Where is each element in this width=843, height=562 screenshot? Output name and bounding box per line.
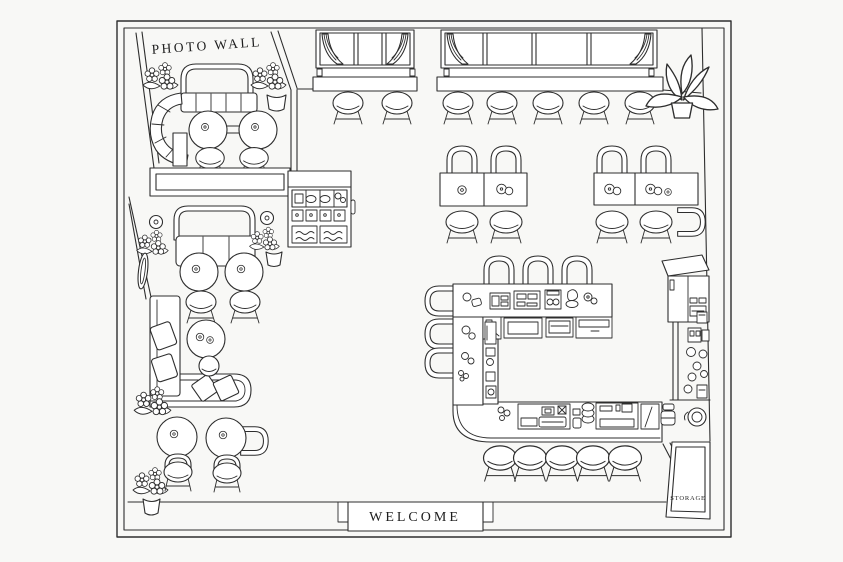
partition-console	[150, 168, 290, 196]
ottoman	[199, 356, 219, 376]
lounge-chair	[230, 291, 260, 323]
milk-jug	[568, 290, 578, 301]
flower-pot	[143, 499, 160, 515]
dining-chair	[640, 211, 672, 243]
bar-stool	[625, 92, 655, 124]
cafe-table	[206, 418, 246, 458]
pastry-display-counter	[288, 171, 355, 247]
dining-chair	[446, 211, 478, 243]
cash-register	[490, 293, 510, 309]
page-background	[0, 0, 843, 562]
lounge-chair	[186, 291, 216, 323]
wall-lamp	[261, 212, 274, 225]
coffee-table	[187, 320, 225, 358]
coffee-grinder	[545, 290, 561, 309]
bar-stool	[533, 92, 563, 124]
floor-plan-canvas: PHOTO WALL	[0, 0, 843, 562]
storage-label: STORAGE	[670, 495, 705, 502]
counter-dish	[463, 293, 471, 301]
dining-chair	[490, 211, 522, 243]
storage-room: STORAGE	[666, 442, 710, 519]
bar-stool	[487, 92, 517, 124]
island-stool	[546, 446, 579, 481]
entrance: WELCOME	[338, 502, 493, 531]
window-bar-counter	[437, 77, 663, 91]
flower-pot	[266, 252, 282, 267]
wall-lamp	[150, 216, 163, 229]
cafe-table	[157, 417, 197, 457]
lounge-table	[225, 253, 263, 291]
dining-chair	[596, 211, 628, 243]
floor-plan-page: PHOTO WALL	[0, 0, 843, 562]
bar-stool	[382, 92, 412, 124]
welcome-label: WELCOME	[369, 510, 461, 525]
island-stool	[609, 446, 642, 481]
bar-stool	[443, 92, 473, 124]
island-stool	[514, 446, 547, 481]
espresso-machine	[514, 291, 540, 309]
window-1	[313, 30, 417, 91]
window-bar-counter	[313, 77, 417, 91]
lounge-table	[180, 253, 218, 291]
bar-stool	[579, 92, 609, 124]
island-stool	[484, 446, 517, 481]
bar-stool	[333, 92, 363, 124]
flower-pot	[267, 95, 286, 111]
island-stool	[577, 446, 610, 481]
